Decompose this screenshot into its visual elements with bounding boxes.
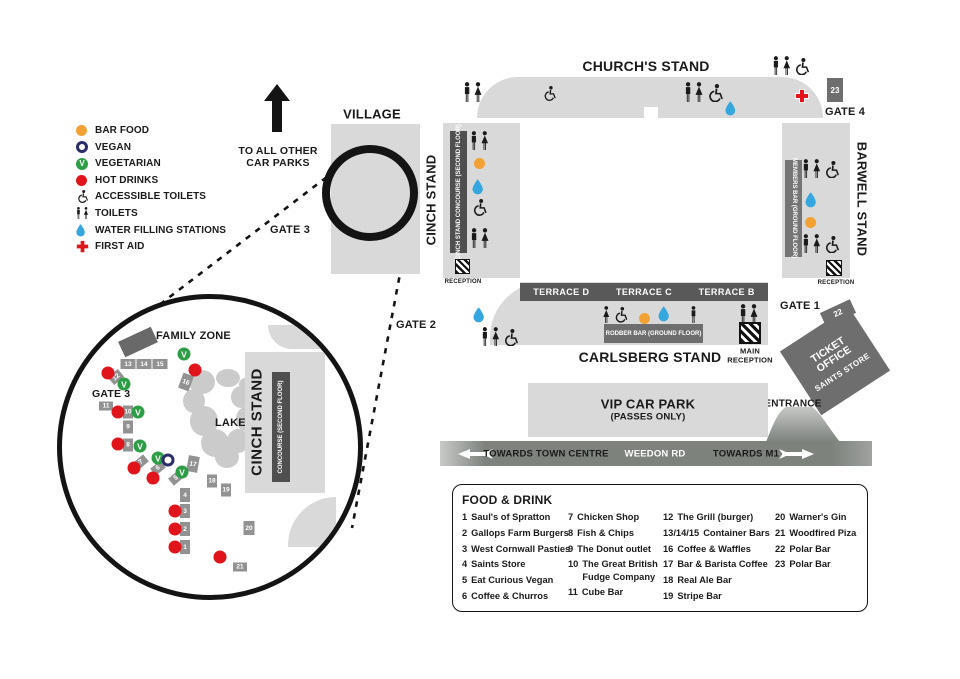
icon-slot [795, 89, 809, 108]
toilets-accessible-icon [684, 82, 725, 102]
icon-slot [802, 234, 841, 258]
first-aid-icon [795, 89, 809, 103]
icon-slot [739, 304, 759, 329]
water-station-icon [658, 306, 669, 322]
icon-slot [470, 131, 489, 155]
toilets-accessible-icon [602, 306, 628, 323]
icon-slot [602, 306, 628, 328]
icon-slot [463, 82, 483, 107]
stadium-map: BAR FOODVEGANVVEGETARIANHOT DRINKSACCESS… [0, 0, 960, 679]
icon-slot [470, 228, 490, 253]
marker-box-23: 23 [827, 78, 843, 102]
icon-slot [639, 311, 650, 329]
icon-slot [684, 82, 725, 107]
toilets-icon [739, 304, 759, 324]
icon-slot [472, 179, 483, 200]
water-station-icon [805, 192, 816, 208]
bar-food-marker [474, 158, 485, 169]
toilets-icon [470, 228, 490, 248]
icon-slot [805, 215, 816, 233]
water-station-icon [725, 101, 736, 116]
icon-slot [690, 306, 697, 328]
water-station-icon [473, 307, 484, 323]
icon-slot [658, 306, 669, 327]
icon-slot [802, 159, 841, 183]
icon-slot [473, 307, 484, 328]
icon-slot [474, 156, 485, 174]
toilets-icon [470, 131, 489, 150]
bar-food-marker [805, 217, 816, 228]
icon-slot [725, 101, 736, 121]
marker-box-22: 22 [820, 299, 856, 327]
map-icons-layer: 2322 [0, 0, 960, 679]
bar-food-marker [639, 313, 650, 324]
icon-slot [481, 327, 520, 351]
icon-slot [805, 192, 816, 213]
accessible-toilet-icon [471, 199, 488, 216]
toilets-icon [463, 82, 483, 102]
icon-slot [542, 86, 557, 106]
icon-slot [471, 199, 488, 221]
icon-slot [772, 56, 811, 80]
toilets-accessible-icon [802, 159, 841, 178]
accessible-toilet-icon [542, 86, 557, 101]
toilets-accessible-icon [802, 234, 841, 253]
toilets-accessible-icon [772, 56, 811, 75]
water-station-icon [472, 179, 483, 195]
toilets-icon [690, 306, 697, 323]
toilets-accessible-icon [481, 327, 520, 346]
